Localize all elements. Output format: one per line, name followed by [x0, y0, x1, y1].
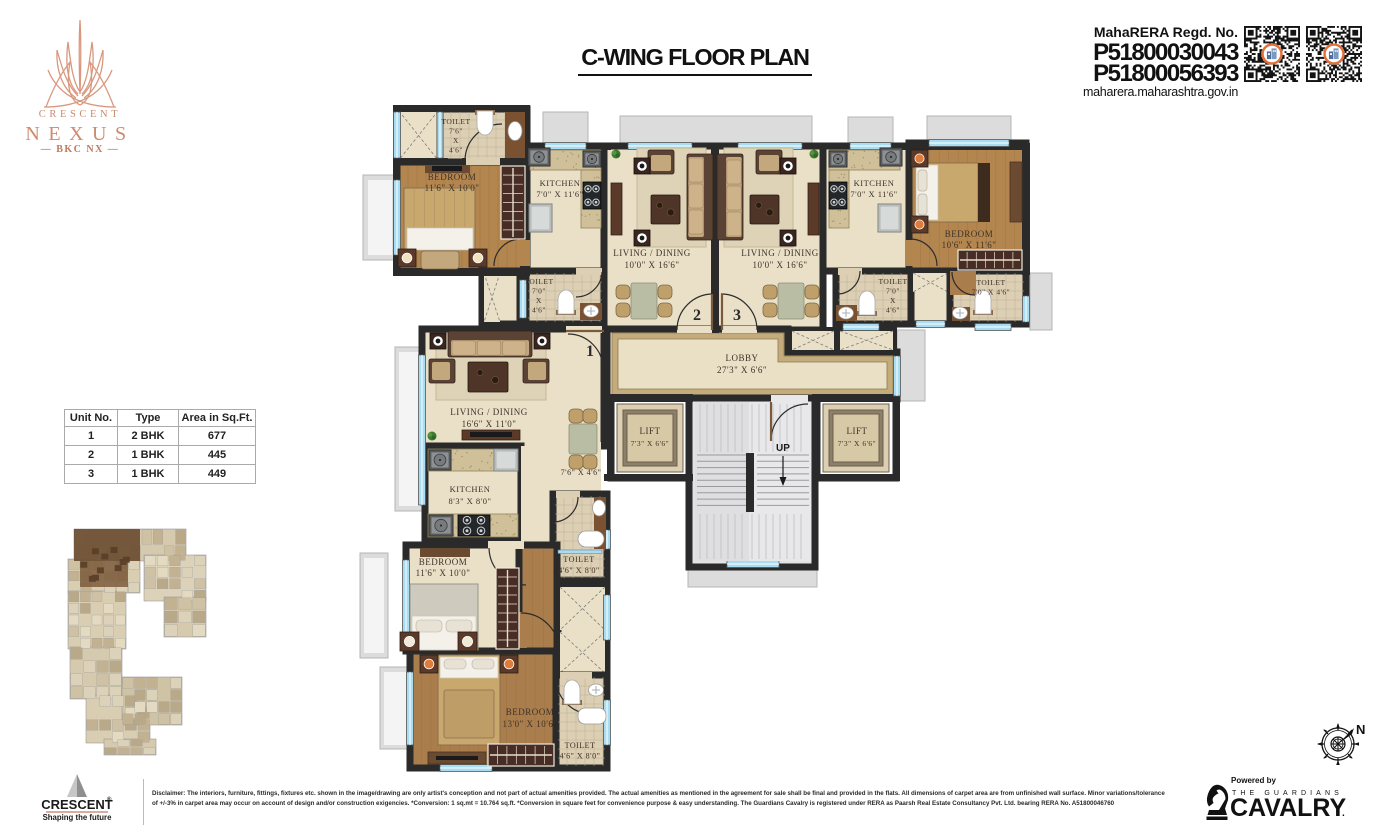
svg-text:13'0" X 10'6": 13'0" X 10'6" — [502, 719, 557, 729]
svg-text:7'6": 7'6" — [449, 127, 463, 136]
svg-text:TOILET: TOILET — [565, 741, 596, 750]
svg-text:8'3" X 8'0": 8'3" X 8'0" — [449, 496, 492, 506]
svg-text:7'0" X 11'6": 7'0" X 11'6" — [536, 189, 583, 199]
svg-text:TOILET: TOILET — [976, 278, 1005, 287]
svg-text:CAVALRY: CAVALRY — [1230, 794, 1347, 822]
svg-text:4'6" X 8'0": 4'6" X 8'0" — [558, 566, 600, 575]
svg-text:4'6" X 8'0": 4'6" X 8'0" — [560, 752, 601, 761]
svg-text:7'3" X 6'6": 7'3" X 6'6" — [631, 439, 670, 448]
svg-text:X: X — [890, 296, 896, 305]
svg-text:1: 1 — [586, 343, 594, 360]
svg-text:7'0" X 11'6": 7'0" X 11'6" — [850, 189, 897, 199]
svg-text:16'6" X 11'0": 16'6" X 11'0" — [462, 419, 517, 429]
svg-text:N: N — [1356, 722, 1365, 737]
svg-text:27'3" X 6'6": 27'3" X 6'6" — [717, 365, 767, 375]
svg-text:TOILET: TOILET — [563, 555, 595, 564]
svg-text:TOILET: TOILET — [441, 117, 470, 126]
svg-text:7'0": 7'0" — [532, 287, 546, 296]
svg-text:LIVING / DINING: LIVING / DINING — [741, 248, 818, 258]
svg-text:X: X — [453, 136, 459, 145]
svg-text:LIVING / DINING: LIVING / DINING — [450, 407, 527, 417]
svg-text:®: ® — [107, 796, 112, 803]
svg-text:2: 2 — [693, 307, 701, 324]
svg-text:10'6" X 11'6": 10'6" X 11'6" — [942, 240, 997, 250]
svg-text:LOBBY: LOBBY — [725, 353, 758, 363]
svg-text:TOILET: TOILET — [878, 277, 907, 286]
svg-text:TOILET: TOILET — [524, 277, 553, 286]
svg-text:Shaping the future: Shaping the future — [43, 813, 113, 822]
svg-text:7'0": 7'0" — [886, 287, 900, 296]
svg-text:4'6": 4'6" — [886, 306, 900, 315]
svg-text:10'0" X 16'6": 10'0" X 16'6" — [624, 260, 679, 270]
svg-text:KITCHEN: KITCHEN — [854, 178, 895, 188]
svg-text:UP: UP — [776, 443, 790, 454]
svg-text:CRESCENT: CRESCENT — [41, 797, 113, 812]
svg-text:11'6" X 10'0": 11'6" X 10'0" — [425, 183, 480, 193]
svg-text:4'6": 4'6" — [532, 306, 546, 315]
svg-text:KITCHEN: KITCHEN — [540, 178, 581, 188]
svg-text:LIFT: LIFT — [640, 426, 661, 436]
svg-text:BEDROOM: BEDROOM — [419, 557, 468, 567]
svg-text:7'6" X 4'6": 7'6" X 4'6" — [561, 468, 602, 477]
svg-text:3: 3 — [733, 307, 741, 324]
svg-text:Powered by: Powered by — [1231, 776, 1276, 785]
svg-text:10'0" X 16'6": 10'0" X 16'6" — [752, 260, 807, 270]
svg-text:7'0" X 4'6": 7'0" X 4'6" — [972, 288, 1011, 297]
svg-text:LIVING / DINING: LIVING / DINING — [613, 248, 690, 258]
svg-text:BEDROOM: BEDROOM — [945, 229, 994, 239]
svg-text:BEDROOM: BEDROOM — [506, 707, 555, 717]
svg-text:BEDROOM: BEDROOM — [428, 172, 477, 182]
svg-text:X: X — [536, 296, 542, 305]
svg-text:KITCHEN: KITCHEN — [450, 484, 491, 494]
svg-text:7'3" X 6'6": 7'3" X 6'6" — [838, 439, 877, 448]
svg-text:11'6" X 10'0": 11'6" X 10'0" — [416, 568, 471, 578]
svg-text:4'6": 4'6" — [449, 146, 463, 155]
svg-text:LIFT: LIFT — [847, 426, 868, 436]
svg-text:.: . — [1342, 808, 1345, 819]
